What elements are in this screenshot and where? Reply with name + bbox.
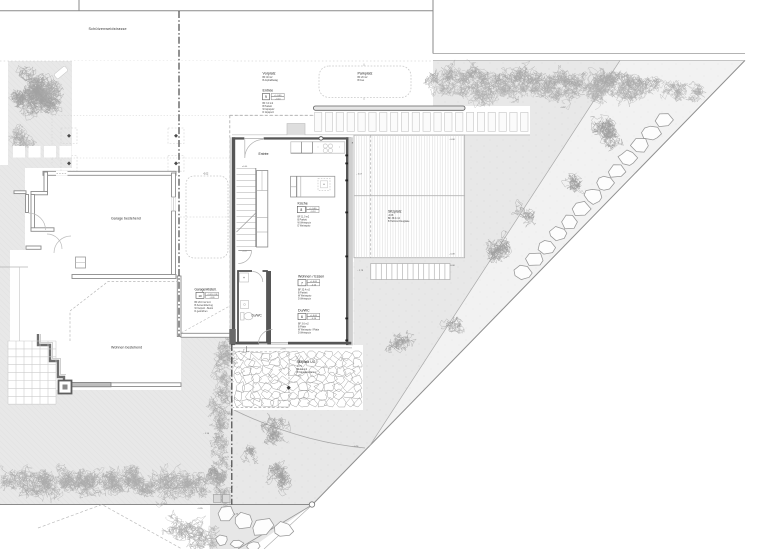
svg-text:W Gipsputz: W Gipsputz xyxy=(263,108,276,111)
svg-text:D gestrichen: D gestrichen xyxy=(195,310,209,313)
svg-text:Du/WC: Du/WC xyxy=(252,314,263,318)
svg-text:W Weissputz: W Weissputz xyxy=(298,295,312,298)
svg-text:Parkplatz: Parkplatz xyxy=(358,72,373,76)
svg-text:Schützenweidstrasse: Schützenweidstrasse xyxy=(89,27,127,31)
svg-text:D Weissputz: D Weissputz xyxy=(298,298,312,301)
svg-text:Entrée: Entrée xyxy=(259,152,269,156)
svg-text:Garage/Abstell.: Garage/Abstell. xyxy=(195,288,217,292)
svg-text:B Parkett: B Parkett xyxy=(263,105,273,108)
svg-text:Küche: Küche xyxy=(298,202,308,206)
svg-text:- 1.20: - 1.20 xyxy=(233,514,239,516)
svg-text:BF 20 m2: BF 20 m2 xyxy=(358,77,369,79)
svg-text:- 0.97: - 0.97 xyxy=(560,107,566,109)
svg-text:Sitzplatz: Sitzplatz xyxy=(388,210,402,214)
svg-text:+/- 0.00: +/- 0.00 xyxy=(310,281,318,283)
svg-text:Garage bestehend: Garage bestehend xyxy=(111,217,141,221)
svg-text:+/- 0.00: +/- 0.00 xyxy=(274,95,282,97)
svg-text:- 0.07: - 0.07 xyxy=(357,174,363,176)
svg-text:B Parkett: B Parkett xyxy=(298,292,308,295)
svg-text:Entrée: Entrée xyxy=(263,89,274,93)
svg-text:- 0.08: - 0.08 xyxy=(449,254,455,256)
svg-text:- 2.79: - 2.79 xyxy=(358,270,364,272)
svg-text:7: 7 xyxy=(301,281,303,285)
svg-text:BF 32.4 m2: BF 32.4 m2 xyxy=(298,290,311,292)
svg-text:10: 10 xyxy=(198,294,202,298)
svg-text:B Natursteinplatten: B Natursteinplatten xyxy=(297,371,317,374)
svg-text:Vorplatz: Vorplatz xyxy=(263,72,276,76)
svg-text:D Gipsputz: D Gipsputz xyxy=(263,111,275,114)
svg-text:±0.00: ±0.00 xyxy=(242,166,248,168)
svg-text:D Weissputz: D Weissputz xyxy=(298,224,312,227)
svg-text:B Zementüberzug: B Zementüberzug xyxy=(195,304,214,307)
svg-text:- 1.10: - 1.10 xyxy=(204,433,210,435)
svg-text:B Kies: B Kies xyxy=(358,80,365,82)
svg-text:B Parkett: B Parkett xyxy=(298,218,308,221)
svg-text:+/- 0.00: +/- 0.00 xyxy=(309,208,317,210)
svg-text:B Holzrost Douglasie: B Holzrost Douglasie xyxy=(388,220,410,223)
svg-text:BF 11.0 m2: BF 11.0 m2 xyxy=(298,216,310,218)
svg-text:W Verputz - Beton: W Verputz - Beton xyxy=(195,307,214,310)
svg-text:BF 36.0 m2: BF 36.0 m2 xyxy=(388,218,401,220)
svg-text:+ 0.01/- 0.08: + 0.01/- 0.08 xyxy=(207,294,218,296)
svg-text:Sitzplatz UG: Sitzplatz UG xyxy=(297,360,316,364)
svg-text:-0.08: -0.08 xyxy=(388,215,394,217)
svg-text:- 0.08: - 0.08 xyxy=(449,139,455,141)
svg-text:8: 8 xyxy=(300,208,302,212)
svg-text:- 2.75: - 2.75 xyxy=(280,348,286,350)
svg-text:9: 9 xyxy=(265,95,267,99)
svg-text:- 0.14: - 0.14 xyxy=(275,98,281,100)
svg-text:D Weissputz: D Weissputz xyxy=(298,331,312,334)
svg-text:-0.02: -0.02 xyxy=(203,173,209,175)
svg-text:BF 3.0 m2: BF 3.0 m2 xyxy=(263,103,274,105)
svg-text:BF 3.6 m2: BF 3.6 m2 xyxy=(298,323,309,325)
svg-text:- 0.14: - 0.14 xyxy=(310,211,316,213)
svg-text:B Platte: B Platte xyxy=(298,325,307,328)
svg-text:W Weissputz / Platte: W Weissputz / Platte xyxy=(298,328,320,331)
svg-text:6: 6 xyxy=(301,315,303,319)
svg-text:BF 40 m2: BF 40 m2 xyxy=(263,77,274,79)
svg-text:BF 9.0 m2: BF 9.0 m2 xyxy=(297,369,308,371)
svg-text:B Asphaltbelag: B Asphaltbelag xyxy=(263,79,279,82)
svg-text:+/- 0.00: +/- 0.00 xyxy=(310,315,318,317)
svg-text:- 0.14: - 0.14 xyxy=(311,318,317,320)
svg-text:Wohnen bestehend: Wohnen bestehend xyxy=(111,346,142,350)
svg-text:Du/WC: Du/WC xyxy=(298,309,310,313)
svg-text:W Weissputz: W Weissputz xyxy=(298,221,312,224)
svg-text:Wohnen / Essen: Wohnen / Essen xyxy=(298,275,324,279)
svg-text:BF 20.0 m2 incl.: BF 20.0 m2 incl. xyxy=(195,302,212,304)
svg-text:-0.75: -0.75 xyxy=(297,366,303,368)
svg-text:- 0.76: - 0.76 xyxy=(353,446,359,448)
svg-text:- 0.95: - 0.95 xyxy=(197,508,203,510)
svg-text:- 0.09: - 0.09 xyxy=(210,297,215,299)
svg-text:- 0.14: - 0.14 xyxy=(311,284,317,286)
